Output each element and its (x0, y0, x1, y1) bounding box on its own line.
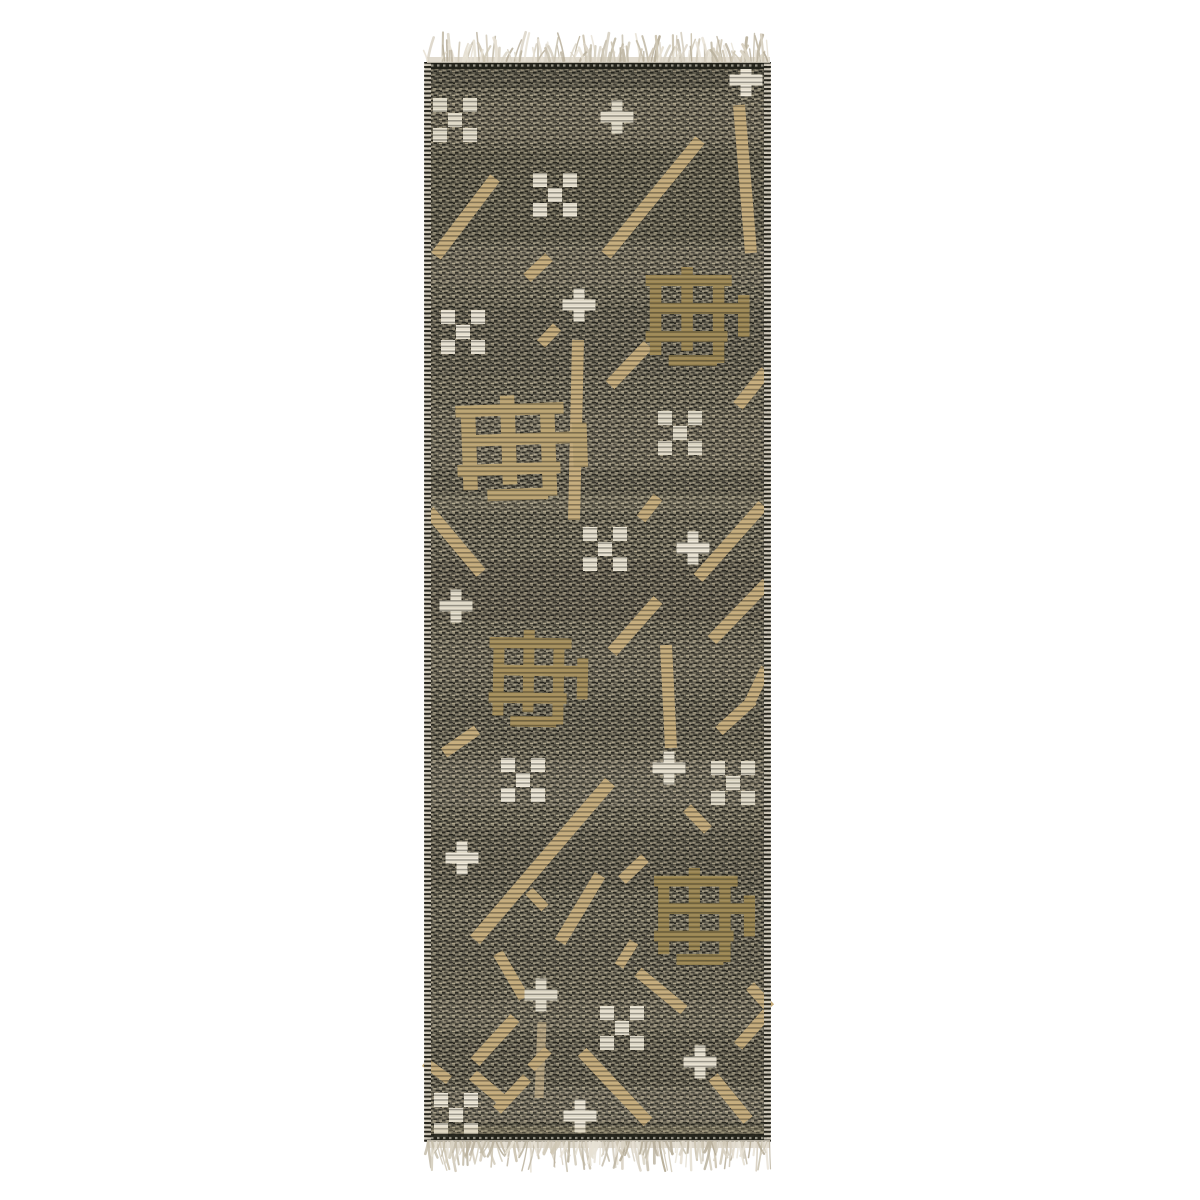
fringe-strand (425, 1142, 428, 1154)
rug (424, 32, 771, 1172)
top-edge-band (425, 62, 770, 69)
fringe-strand (600, 1142, 601, 1164)
fringe-strand (702, 1142, 703, 1152)
bottom-light-band (425, 1127, 770, 1134)
fringe-strand (499, 48, 500, 61)
fringe-strand (448, 1142, 449, 1157)
fringe-strand (754, 33, 755, 61)
fringe-strand (424, 51, 428, 62)
fringe-strand (633, 1142, 634, 1152)
fringe-strand (671, 1142, 673, 1154)
weave-texture-overlay (425, 62, 770, 1142)
fringe-strand (688, 1142, 689, 1153)
fringe-strand (603, 49, 604, 61)
fringe-bottom (425, 1140, 770, 1172)
fringe-strand (590, 45, 591, 61)
fringe-strand (691, 1142, 692, 1170)
product-image (0, 0, 1200, 1200)
left-selvage (424, 62, 431, 1142)
fringe-strand (474, 41, 475, 61)
fringe-strand (451, 51, 452, 61)
right-selvage (764, 62, 771, 1142)
fringe-strand (466, 52, 467, 61)
fringe-strand (709, 50, 710, 61)
fringe-strand (623, 50, 625, 61)
fringe-top (424, 32, 770, 63)
fringe-strand (770, 1142, 771, 1169)
rug-product-photo (0, 0, 1200, 1200)
fringe-strand (620, 48, 621, 61)
fringe-strand (595, 46, 596, 61)
fringe-strand (754, 1142, 755, 1155)
